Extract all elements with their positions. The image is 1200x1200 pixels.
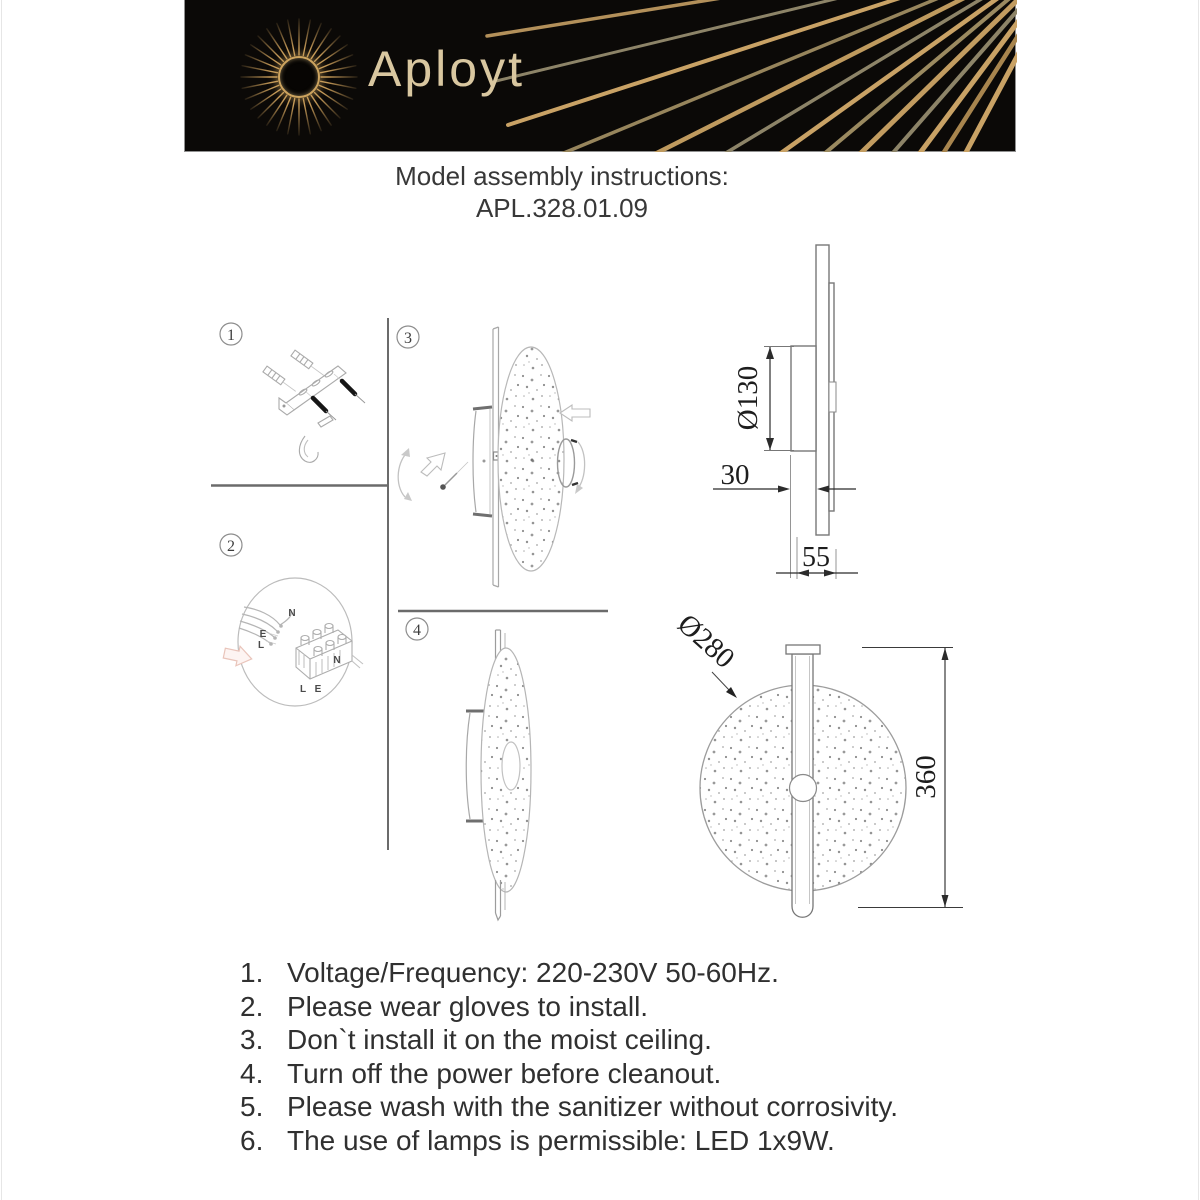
instruction-number: 3.: [240, 1023, 287, 1057]
instruction-number: 5.: [240, 1090, 287, 1124]
wall-anchor-icon: [291, 350, 326, 378]
instruction-item: 5. Please wash with the sanitizer withou…: [240, 1090, 1040, 1124]
push-arrow-icon: [421, 453, 445, 476]
dimension-d280: Ø280: [671, 608, 740, 698]
step-1-number: 1: [227, 327, 235, 344]
instruction-text: Don`t install it on the moist ceiling.: [287, 1023, 1040, 1057]
wire-label-n: N: [288, 608, 295, 619]
instruction-text: Please wash with the sanitizer without c…: [287, 1090, 1040, 1124]
step-3: 3: [397, 326, 590, 587]
instruction-text: Please wear gloves to install.: [287, 990, 1040, 1024]
instruction-text: Turn off the power before cleanout.: [287, 1057, 1040, 1091]
instruction-item: 4. Turn off the power before cleanout.: [240, 1057, 1040, 1091]
step-4-number: 4: [413, 622, 421, 639]
rotate-arrow-icon: [398, 448, 412, 501]
instruction-number: 1.: [240, 956, 287, 990]
mount-edge: [791, 346, 816, 451]
side-view-drawing: Ø130 30 55: [713, 245, 858, 579]
dimension-55: 55: [776, 537, 858, 579]
terminal-label-e: E: [315, 684, 322, 695]
center-hub: [790, 775, 817, 802]
instructions-list: 1. Voltage/Frequency: 220-230V 50-60Hz. …: [240, 956, 1040, 1157]
terminal-label-l: L: [300, 684, 306, 695]
step-1: 1: [220, 323, 365, 462]
instruction-text: The use of lamps is permissible: LED 1x9…: [287, 1124, 1040, 1158]
hook-piece: [299, 436, 318, 462]
step-2: 2: [220, 534, 363, 706]
terminal-label-n: N: [333, 655, 340, 666]
lamp-exploded-view: [398, 327, 590, 587]
instruction-item: 1. Voltage/Frequency: 220-230V 50-60Hz.: [240, 956, 1040, 990]
driver-box: [829, 382, 836, 412]
step-2-number: 2: [227, 538, 235, 555]
wall-anchor-icon: [263, 366, 298, 394]
cover-chip: [318, 416, 333, 427]
lamp-assembled-view: [466, 630, 531, 920]
center-hole: [502, 742, 520, 790]
instruction-number: 6.: [240, 1124, 287, 1158]
instruction-item: 6. The use of lamps is permissible: LED …: [240, 1124, 1040, 1158]
wiring-diagram: N E L N L E: [222, 578, 363, 706]
front-view-drawing: Ø280 360: [671, 608, 963, 917]
instruction-item: 3. Don`t install it on the moist ceiling…: [240, 1023, 1040, 1057]
instruction-text: Voltage/Frequency: 220-230V 50-60Hz.: [287, 956, 1040, 990]
wire-label-l: L: [258, 640, 264, 651]
bracket-drawing: [263, 350, 365, 462]
instruction-item: 2. Please wear gloves to install.: [240, 990, 1040, 1024]
dim-label-30: 30: [721, 459, 750, 491]
dim-label-d280: Ø280: [671, 608, 740, 675]
small-screw-icon: [440, 462, 468, 490]
instruction-sheet: { "header": { "brand": "Aployt" }, "titl…: [0, 0, 1200, 1200]
step-3-number: 3: [404, 330, 412, 347]
dim-label-360: 360: [910, 755, 942, 799]
mount-body: [473, 407, 492, 516]
dim-label-d130: Ø130: [732, 366, 764, 430]
wire-label-e: E: [260, 629, 267, 640]
instruction-number: 2.: [240, 990, 287, 1024]
terminal-block: [296, 624, 363, 680]
instruction-number: 4.: [240, 1057, 287, 1091]
dimension-d130: Ø130: [732, 347, 794, 451]
step-4: 4: [406, 618, 531, 920]
instructions-section: 1. Voltage/Frequency: 220-230V 50-60Hz. …: [240, 956, 1040, 1157]
insert-arrow-icon: [560, 405, 590, 421]
dim-label-55: 55: [802, 542, 830, 573]
